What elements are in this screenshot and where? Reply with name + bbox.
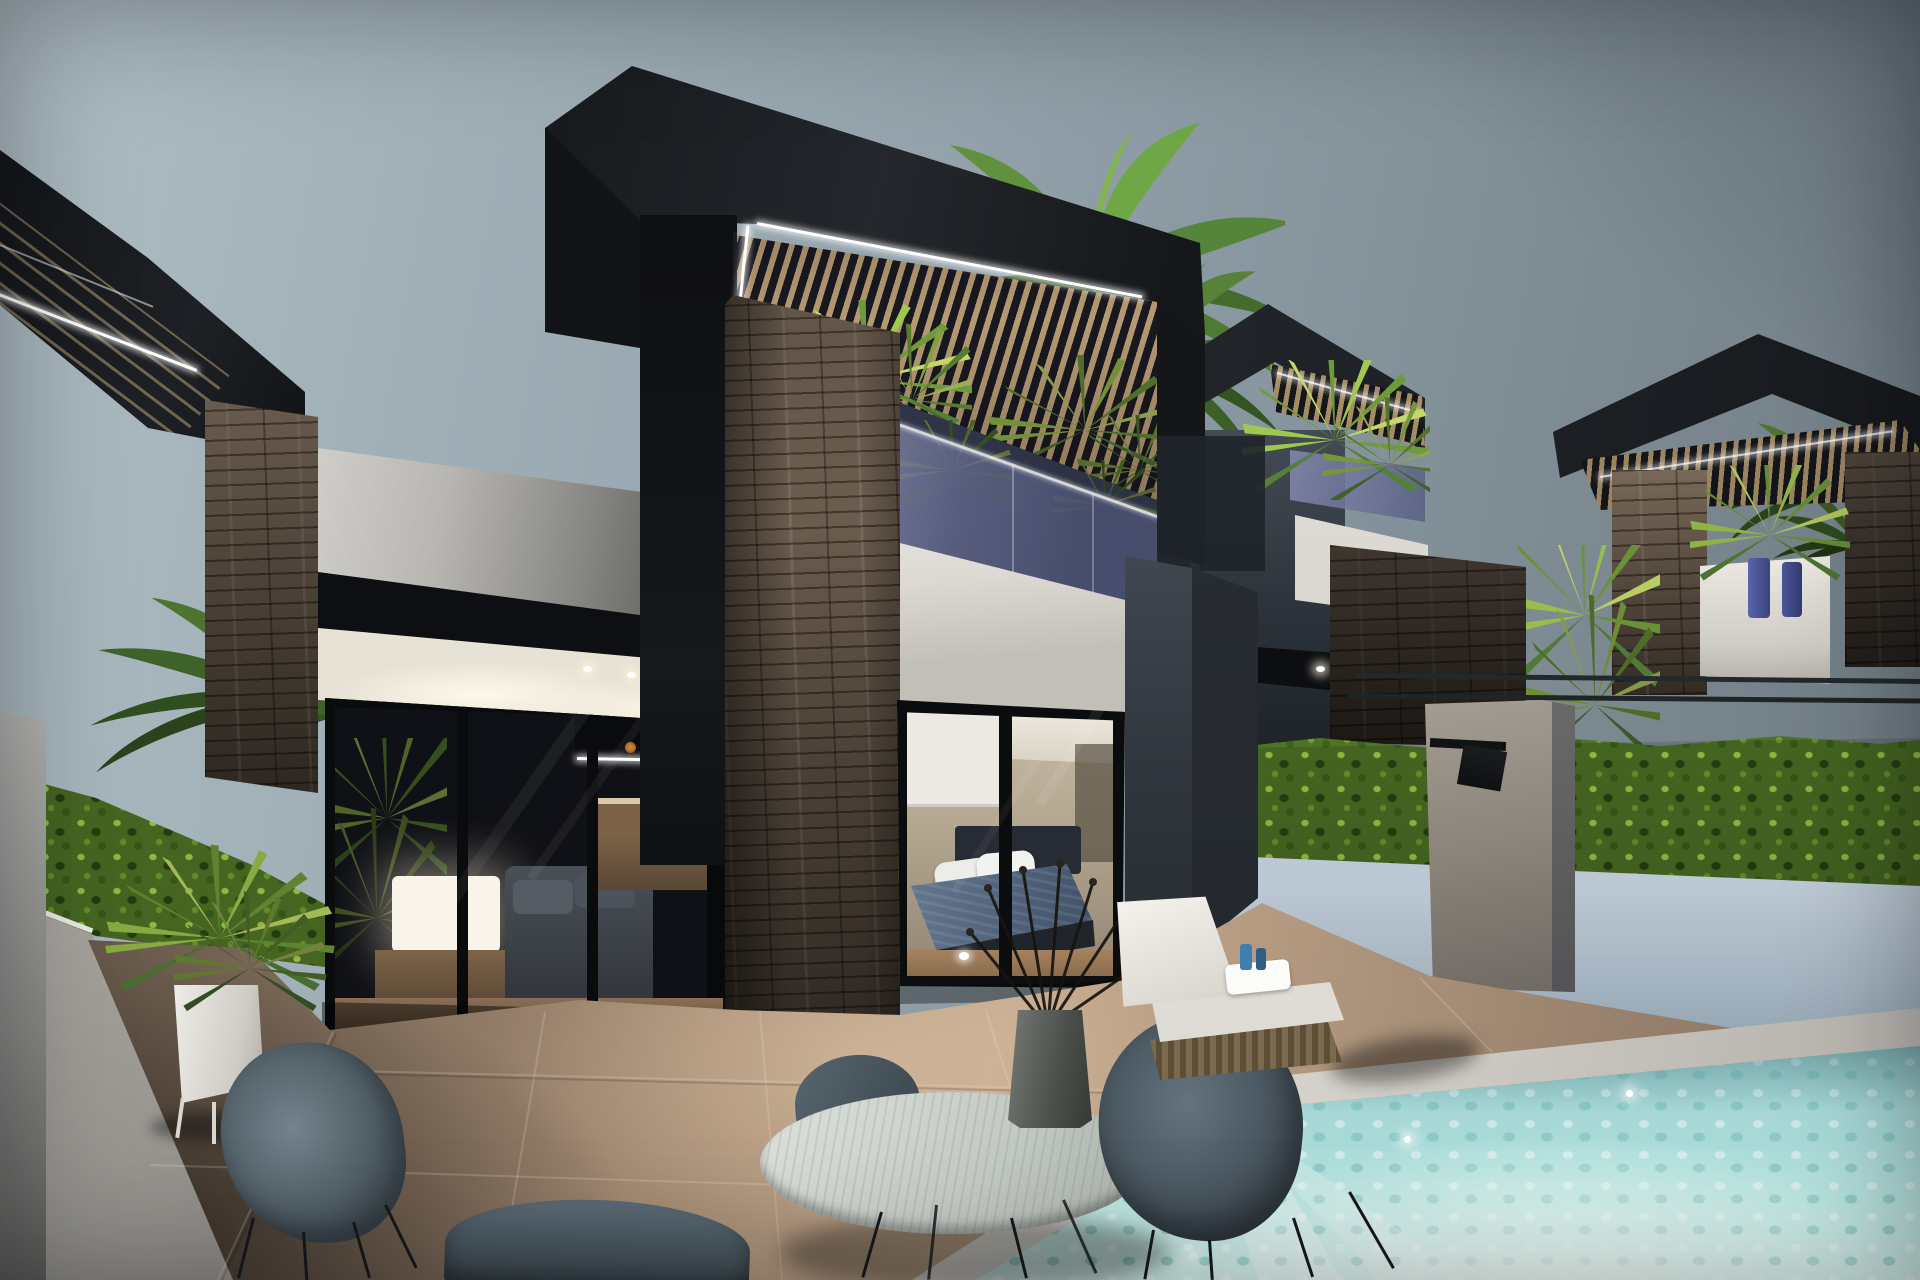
pool-sparkle — [1404, 1136, 1411, 1143]
villa2-downlight — [1316, 666, 1325, 672]
balcony-glass-divider-2 — [1092, 494, 1094, 606]
left-house-stone-pillar — [205, 395, 319, 795]
villa3-sago-icon — [1690, 465, 1850, 585]
balcony-glass-divider — [1012, 466, 1014, 574]
recessed-spotlight-2 — [627, 672, 636, 678]
recessed-spotlight — [583, 666, 592, 672]
roller-blind — [903, 712, 999, 807]
shower-head-icon — [1457, 744, 1507, 791]
pool-sparkle-4 — [1190, 1252, 1197, 1259]
planter-plant-icon — [95, 838, 345, 1018]
villa-night-render — [0, 0, 1920, 1280]
pool-sparkle-2 — [1626, 1090, 1633, 1097]
villa2-sago-icon — [1240, 360, 1430, 500]
sofa-cushion — [513, 880, 573, 914]
table-vase — [1008, 1010, 1092, 1128]
shower-panel-edge — [1552, 700, 1575, 992]
lounger-bottle — [1240, 944, 1252, 970]
villa3-stone-wall-right — [1845, 452, 1920, 667]
tower-right-backdrop — [1157, 436, 1265, 571]
glass-mullion-3 — [587, 710, 598, 1032]
tower-left-post — [640, 215, 737, 865]
planter-leg-2 — [212, 1102, 216, 1144]
left-edge-pillar — [0, 712, 48, 1280]
lounger-bottle-2 — [1256, 948, 1266, 970]
